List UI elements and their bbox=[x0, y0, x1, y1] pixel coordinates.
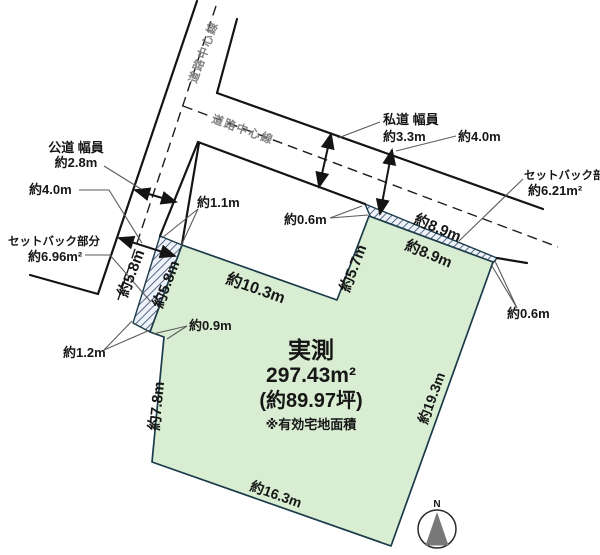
leader-1-1-a bbox=[162, 209, 198, 238]
leader-public-road-label bbox=[104, 166, 141, 189]
compass-north-label: N bbox=[433, 499, 440, 510]
public-road-name-label: 公道 幅員 bbox=[48, 140, 104, 155]
plot-area-tsubo: (約89.97坪) bbox=[259, 388, 362, 412]
setback-west-area-label: 約6.96m² bbox=[28, 249, 83, 264]
dim-0-6-west-label: 約0.6m bbox=[284, 212, 327, 227]
leader-setback-north bbox=[459, 179, 523, 241]
public-road-width-label: 約2.8m bbox=[55, 155, 98, 170]
leader-private-road-label bbox=[338, 122, 380, 138]
public-road-right-edge-upper bbox=[217, 19, 237, 93]
dim-1-1-label: 約1.1m bbox=[197, 195, 240, 210]
private-road-name-label: 私道 幅員 bbox=[383, 112, 439, 127]
leader-1-2-b bbox=[104, 330, 150, 350]
neighbor-boundary-left bbox=[30, 275, 98, 294]
arrow-road-width-2-8 bbox=[135, 190, 176, 202]
private-road-centerline-label: 道路中心線 bbox=[210, 112, 276, 147]
dim-0-9-label: 約0.9m bbox=[189, 318, 232, 333]
leader-1-2-a bbox=[104, 321, 132, 350]
plot-area-title: 実測 bbox=[288, 337, 334, 363]
boundary-extension-right bbox=[497, 258, 527, 263]
leader-1-1-b bbox=[181, 209, 198, 246]
leader-0-6-east-b bbox=[492, 266, 517, 308]
dim-0-6-east-label: 約0.6m bbox=[507, 306, 550, 321]
future-width-north-label: 約4.0m bbox=[458, 129, 501, 144]
compass: N bbox=[418, 499, 456, 548]
dim-1-2-label: 約1.2m bbox=[63, 345, 106, 360]
setback-north-area-label: 約6.21m² bbox=[528, 183, 583, 198]
setback-west-title: セットバック部分 bbox=[8, 234, 100, 248]
plot-area-note: ※有効宅地面積 bbox=[266, 417, 358, 432]
public-road-centerline-label: 道路中心線 bbox=[186, 19, 221, 85]
land-survey-diagram: 道路中心線 道路中心線 公道 幅員 約2.8m 約4.0m セットバック部分 約… bbox=[0, 0, 600, 555]
arrow-future-width-4-0-north bbox=[380, 150, 392, 214]
survey-canvas: 道路中心線 道路中心線 公道 幅員 約2.8m 約4.0m セットバック部分 約… bbox=[0, 0, 600, 555]
plot-area-value: 297.43m² bbox=[266, 364, 356, 387]
future-width-west-label: 約4.0m bbox=[29, 182, 72, 197]
arrow-road-width-3-3 bbox=[319, 134, 331, 187]
setback-north-title: セットバック部分 bbox=[524, 168, 600, 182]
leader-0-6-east-a bbox=[495, 261, 517, 308]
private-road-upper-edge bbox=[217, 93, 543, 209]
private-road-width-label: 約3.3m bbox=[383, 129, 426, 144]
